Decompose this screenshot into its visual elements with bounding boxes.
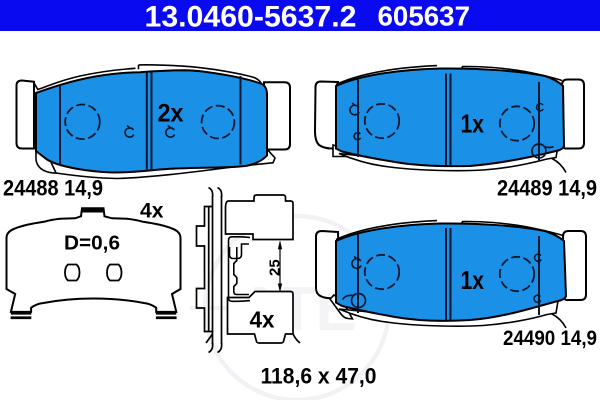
svg-text:24488 14,9: 24488 14,9 bbox=[3, 176, 103, 201]
svg-text:4x: 4x bbox=[140, 200, 164, 223]
svg-text:D=0,6: D=0,6 bbox=[64, 233, 120, 255]
svg-text:118,6 x 47,0: 118,6 x 47,0 bbox=[261, 364, 377, 389]
svg-text:2x: 2x bbox=[158, 100, 184, 128]
svg-text:1x: 1x bbox=[461, 265, 485, 295]
svg-text:13.0460-5637.2: 13.0460-5637.2 bbox=[145, 1, 357, 34]
svg-text:605637: 605637 bbox=[378, 1, 471, 32]
svg-text:1x: 1x bbox=[461, 109, 485, 139]
svg-text:25: 25 bbox=[267, 259, 284, 276]
svg-text:4x: 4x bbox=[250, 307, 275, 333]
svg-text:24489 14,9: 24489 14,9 bbox=[497, 176, 597, 201]
svg-text:24490 14,9: 24490 14,9 bbox=[503, 327, 597, 350]
